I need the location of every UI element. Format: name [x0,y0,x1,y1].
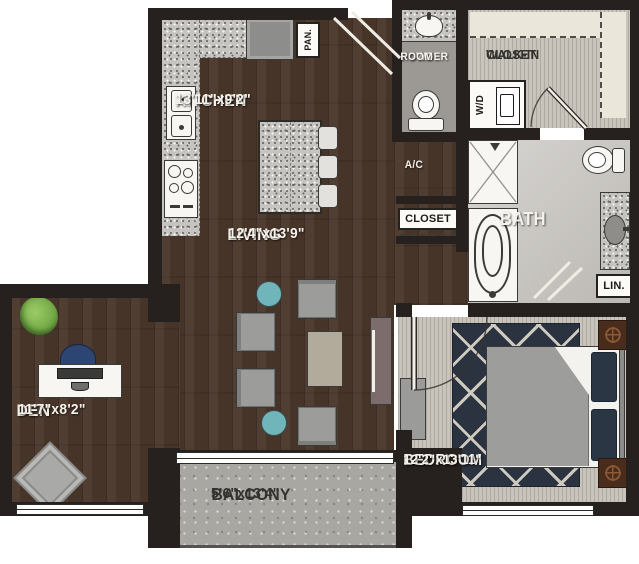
linen-closet-label: LIN. [596,274,632,298]
plant-icon [20,297,58,335]
balcony-sliding-door [176,452,394,464]
wall [630,0,639,310]
washer-dryer-label: W/D [475,95,486,115]
ac-name: A/C [405,160,423,172]
nightstand [598,458,628,488]
balcony-floor [168,462,396,548]
wall [456,136,468,252]
bedroom-window [462,505,594,516]
wall [456,8,468,140]
linen-label-text: LIN. [603,280,625,292]
floor-plan: PAN. W/D [0,0,639,564]
wall [0,284,12,516]
desk [38,364,122,398]
bed-sheet-fold [555,347,589,395]
balcony-dims: 5'6"x13'4" [211,486,279,502]
wall [396,303,412,317]
hall-closet-label: CLOSET [398,208,458,230]
refrigerator [246,18,294,60]
wall [626,303,639,516]
bath-name: BATH [500,210,546,229]
powder-line2: ROOM [400,52,433,64]
side-table-teal [256,281,282,307]
wall [584,128,639,140]
monitor-icon [57,368,103,379]
bath-vanity [600,192,630,270]
pillow [591,409,617,461]
wall [0,284,162,298]
armchair [236,368,276,408]
shower [468,140,518,204]
tv-console [370,317,392,405]
armchair [297,406,337,446]
closet-shelf-right [600,12,626,118]
walkin-line2: CLOSET [486,48,536,62]
wall [468,303,639,317]
den-window [16,504,144,515]
pantry-label: PAN. [296,22,320,58]
living-dims: 12'4"x13'9" [228,226,304,242]
powder-vanity [402,10,456,42]
bar-stool [318,126,338,150]
bedroom-dims: 12'2"x13'11" [403,452,481,467]
wall [392,0,639,10]
wall [396,196,458,204]
wall [148,8,348,20]
headboard [619,345,625,468]
bar-stool [318,184,338,208]
bed [486,346,624,468]
armchair [297,279,337,319]
washer-dryer-unit: W/D [468,80,526,130]
bar-stool [318,155,338,179]
kitchen-dims: 13'11"x9'2" [175,92,251,108]
pillow [591,352,617,402]
armchair [236,312,276,352]
den-dims: 11'7"x8'2" [18,402,86,418]
pantry-label-text: PAN. [303,29,313,51]
side-table-teal [261,410,287,436]
wall [392,8,402,142]
stove-cooktop [164,160,198,218]
nightstand [598,320,628,350]
wall [148,8,162,298]
kitchen-island [258,120,322,214]
hall-closet-label-text: CLOSET [405,213,451,225]
powder-toilet [406,90,448,136]
wall [396,236,458,244]
washer-icon [496,87,520,125]
bath-toilet [582,144,630,178]
coffee-table [307,331,343,387]
wall [148,284,180,322]
tv-icon [372,330,375,392]
monitor-stand [71,382,89,391]
